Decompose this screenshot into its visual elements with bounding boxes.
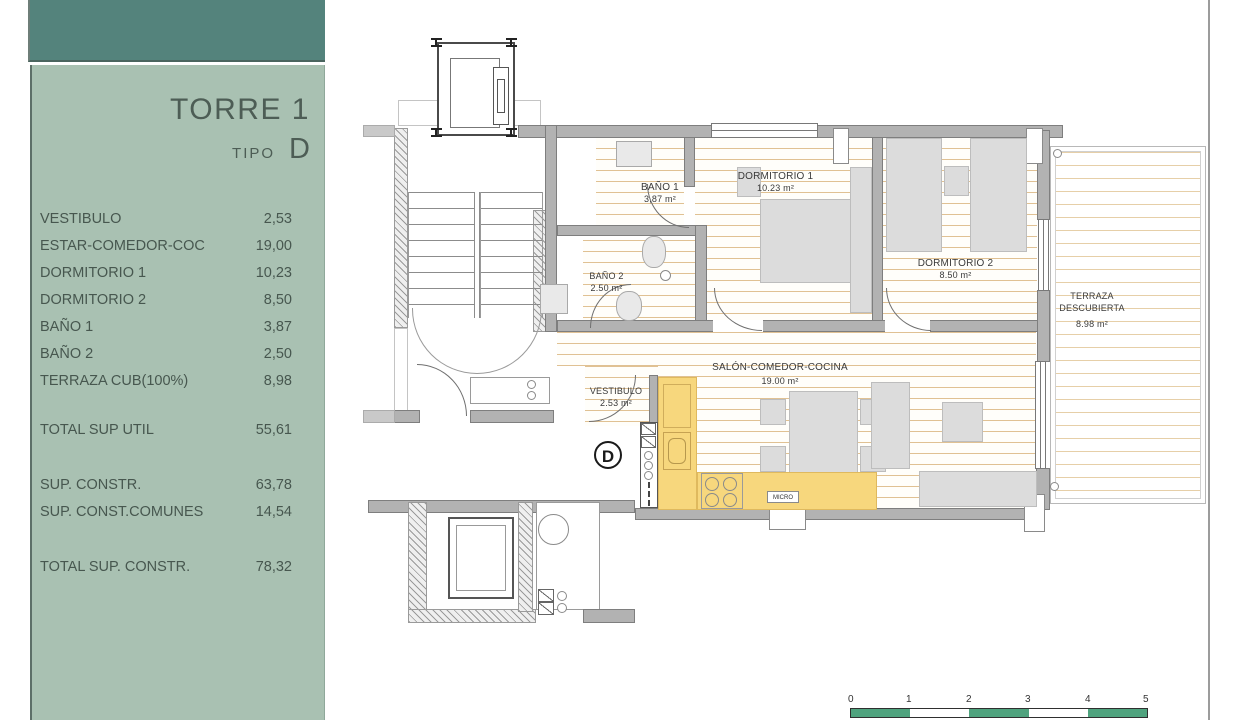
wall bbox=[470, 410, 554, 423]
wall bbox=[872, 137, 883, 332]
room-area: 8.50 m² bbox=[893, 270, 1018, 282]
tv-bench bbox=[919, 471, 1037, 507]
armchair bbox=[942, 402, 983, 442]
room-area: 19.00 m² bbox=[700, 376, 860, 388]
toilet-icon bbox=[642, 236, 666, 268]
burner-icon bbox=[705, 477, 719, 491]
window bbox=[1035, 361, 1046, 469]
scale-tick: 1 bbox=[906, 694, 912, 705]
cabinet-knob-icon bbox=[527, 391, 536, 400]
banyo1-label: BAÑO 1 3,87 m² bbox=[620, 181, 700, 206]
cabinet-knob-icon bbox=[527, 380, 536, 389]
single-bed bbox=[970, 138, 1027, 252]
chair bbox=[760, 399, 786, 425]
hall-cabinet bbox=[470, 377, 550, 404]
single-bed bbox=[886, 138, 942, 252]
toilet-icon bbox=[616, 291, 642, 321]
core-wall-hatched bbox=[394, 128, 408, 328]
ibeam-icon bbox=[506, 128, 517, 137]
wall bbox=[695, 225, 707, 332]
ibeam-icon bbox=[431, 128, 442, 137]
unit-marker-badge: D bbox=[594, 441, 622, 469]
wall bbox=[363, 125, 395, 137]
room-name: VESTIBULO bbox=[578, 386, 654, 398]
window bbox=[711, 123, 818, 138]
scale-tick: 3 bbox=[1025, 694, 1031, 705]
room-name: DESCUBIERTA bbox=[1052, 303, 1132, 315]
room-area: 2.50 m² bbox=[569, 283, 644, 295]
wall bbox=[1037, 290, 1050, 362]
ibeam-icon bbox=[506, 38, 517, 47]
scale-segment bbox=[1088, 709, 1147, 717]
terrace-door-opening bbox=[769, 508, 806, 530]
room-area: 10.23 m² bbox=[713, 183, 838, 195]
wall bbox=[394, 410, 420, 423]
room-name: DORMITORIO 2 bbox=[893, 257, 1018, 270]
wall bbox=[363, 410, 395, 423]
scale-bar-strip bbox=[850, 708, 1148, 718]
wall bbox=[684, 137, 695, 187]
ibeam-icon bbox=[431, 38, 442, 47]
terraza-drain-icon bbox=[1053, 149, 1062, 158]
scale-tick: 4 bbox=[1085, 694, 1091, 705]
window bbox=[1038, 219, 1049, 291]
wardrobe-column bbox=[833, 128, 849, 164]
room-name: SALÓN-COMEDOR-COCINA bbox=[700, 361, 860, 374]
core-wall-hatched bbox=[518, 502, 533, 612]
staircase-flight-left bbox=[408, 192, 476, 318]
room-area: 3,87 m² bbox=[620, 194, 700, 206]
core-wall bbox=[394, 328, 408, 412]
scale-bar: 0 1 2 3 4 5 bbox=[848, 694, 1150, 720]
wall bbox=[583, 609, 635, 623]
shaft-vent-icon bbox=[641, 436, 656, 448]
shaft-dashed-line bbox=[648, 482, 650, 506]
salon-label: SALÓN-COMEDOR-COCINA 19.00 m² bbox=[700, 361, 860, 388]
room-name: BAÑO 2 bbox=[569, 271, 644, 283]
micro-label: MICRO bbox=[767, 491, 799, 503]
scale-segment bbox=[1029, 709, 1088, 717]
shaft-vent-icon bbox=[641, 423, 656, 435]
wall bbox=[557, 225, 697, 236]
floor-plan: MICRO BAÑO 1 3,87 m² DORMITORIO 1 10.23 … bbox=[0, 0, 1240, 720]
washer-icon bbox=[538, 514, 569, 545]
shaft-vent-icon bbox=[538, 589, 554, 602]
burner-icon bbox=[705, 493, 719, 507]
dormitorio1-label: DORMITORIO 1 10.23 m² bbox=[713, 170, 838, 195]
scale-tick: 5 bbox=[1143, 694, 1149, 705]
room-name: DORMITORIO 1 bbox=[713, 170, 838, 183]
chair bbox=[760, 446, 786, 472]
pipe-icon bbox=[557, 591, 567, 601]
wardrobe bbox=[850, 167, 872, 313]
dining-table bbox=[789, 391, 858, 476]
vestibulo-label: VESTIBULO 2.53 m² bbox=[578, 386, 654, 409]
burner-icon bbox=[723, 493, 737, 507]
washbasin bbox=[540, 284, 568, 314]
room-area: 2.53 m² bbox=[578, 398, 654, 410]
sheet-border-line bbox=[1208, 0, 1210, 720]
stair-landing-arc bbox=[412, 308, 542, 374]
wardrobe-column bbox=[1026, 128, 1043, 164]
staircase-flight-right bbox=[480, 192, 543, 318]
pipe-icon bbox=[644, 471, 653, 480]
scale-tick: 2 bbox=[966, 694, 972, 705]
shower-tray bbox=[616, 141, 652, 167]
kitchen-sink-basin bbox=[668, 438, 686, 464]
staircase-stringer bbox=[474, 192, 480, 318]
pipe-icon bbox=[644, 461, 653, 470]
elevator-rail bbox=[497, 79, 505, 113]
scale-segment bbox=[969, 709, 1028, 717]
pipe-icon bbox=[557, 603, 567, 613]
room-name: BAÑO 1 bbox=[620, 181, 700, 194]
scale-segment bbox=[851, 709, 910, 717]
pipe-icon bbox=[644, 451, 653, 460]
core-wall-hatched bbox=[408, 502, 427, 623]
sofa bbox=[871, 382, 910, 469]
sink-icon bbox=[660, 270, 671, 281]
burner-icon bbox=[723, 477, 737, 491]
shaft-vent-icon bbox=[538, 602, 554, 615]
kitchen-module bbox=[663, 384, 691, 428]
terraza-drain-icon bbox=[1050, 482, 1059, 491]
dormitorio2-label: DORMITORIO 2 8.50 m² bbox=[893, 257, 1018, 282]
nightstand bbox=[944, 166, 969, 196]
banyo2-label: BAÑO 2 2.50 m² bbox=[569, 271, 644, 294]
room-area: 8.98 m² bbox=[1052, 319, 1132, 331]
elevator-cab bbox=[456, 525, 506, 591]
core-wall-hatched bbox=[408, 609, 536, 623]
terraza-label: TERRAZA DESCUBIERTA 8.98 m² bbox=[1052, 291, 1132, 331]
floor-plan-sheet: { "sidebar": { "title": "TORRE 1", "tipo… bbox=[0, 0, 1240, 720]
room-name: TERRAZA bbox=[1052, 291, 1132, 303]
scale-tick: 0 bbox=[848, 694, 854, 705]
scale-segment bbox=[910, 709, 969, 717]
